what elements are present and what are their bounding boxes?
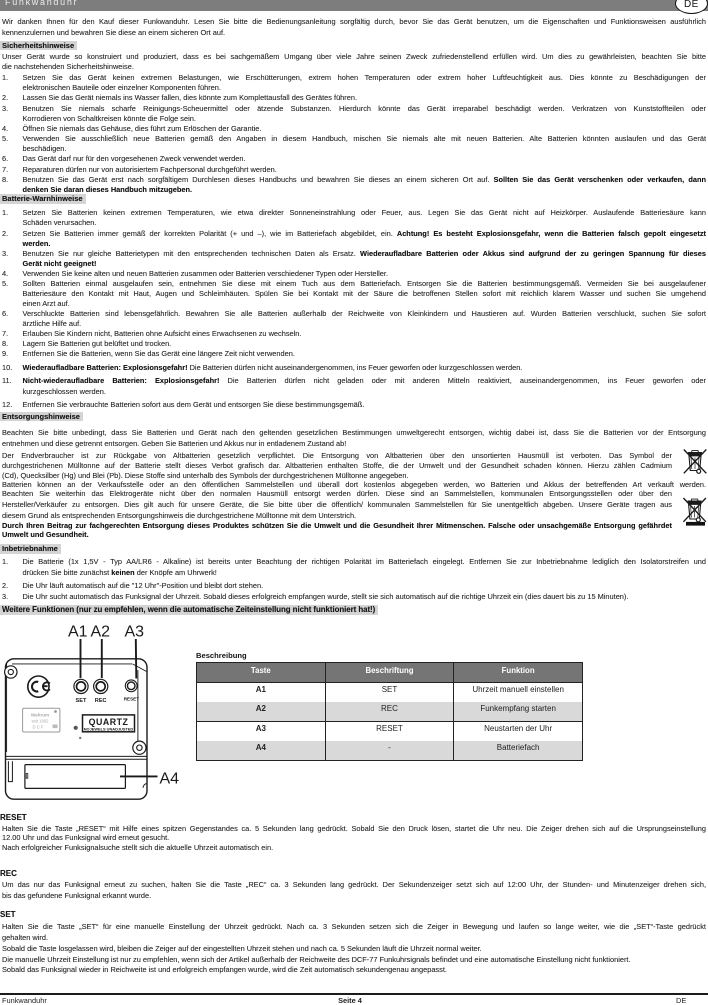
svg-text:SET: SET [76, 698, 87, 704]
svg-text:RESET: RESET [124, 697, 140, 702]
svg-text:A4: A4 [160, 771, 180, 788]
svg-text:REC: REC [95, 698, 107, 704]
svg-text:seit 1902: seit 1902 [32, 719, 50, 724]
svg-text:A3: A3 [125, 624, 145, 641]
svg-text:A2: A2 [91, 624, 111, 641]
svg-text:A1: A1 [68, 624, 88, 641]
svg-text:D C F: D C F [33, 725, 44, 730]
svg-text:QUARTZ: QUARTZ [89, 717, 129, 727]
svg-text:NOJEWELS UNADJUSTED: NOJEWELS UNADJUSTED [84, 727, 134, 732]
svg-text:Wehrum: Wehrum [31, 713, 49, 718]
